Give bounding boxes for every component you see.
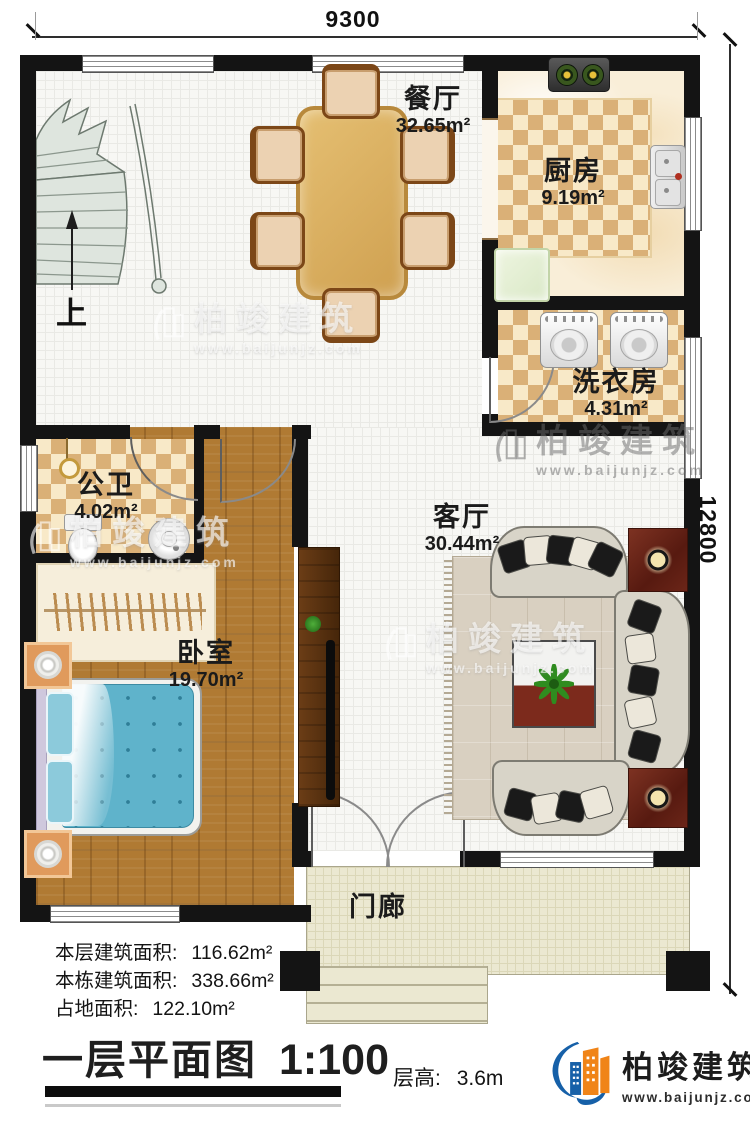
window	[20, 445, 38, 512]
porch-pillar	[666, 951, 710, 991]
wall	[684, 229, 700, 337]
dining-chair	[250, 212, 305, 270]
dining-chair	[322, 288, 380, 343]
dining-chair	[250, 126, 305, 184]
wall	[20, 55, 36, 445]
bathroom-label: 公卫 4.02m²	[74, 470, 137, 524]
wall-bedroom-bottom	[20, 905, 50, 922]
toilet-bowl	[68, 528, 98, 563]
room-name: 餐厅	[396, 84, 471, 115]
stairs-direction-line	[71, 228, 73, 290]
dimension-line-top	[32, 36, 698, 38]
room-name: 公卫	[74, 470, 137, 501]
dimension-width-label: 9300	[325, 6, 380, 33]
kitchen-sink	[650, 145, 686, 209]
bed-pillow	[46, 692, 74, 756]
dining-chair	[400, 212, 455, 270]
nightstand	[24, 830, 72, 878]
floor-plan-page: { "dimensions": { "width_label": "9300",…	[0, 0, 750, 1122]
nightstand-lamp	[34, 840, 62, 868]
stat-label: 本栋建筑面积:	[55, 970, 177, 992]
window	[50, 905, 180, 923]
sofa-pillow	[627, 664, 661, 698]
kitchen-opening	[482, 118, 498, 240]
living-label: 客厅 30.44m²	[425, 502, 500, 556]
window	[82, 55, 214, 73]
dining-label: 餐厅 32.65m²	[396, 84, 471, 138]
sofa-bottom	[492, 760, 630, 836]
brand-logo-icon	[550, 1038, 614, 1108]
nightstand	[24, 642, 72, 689]
title-bar	[45, 1086, 341, 1097]
sink-drain	[664, 188, 669, 193]
stairs-up-label: 上	[56, 288, 87, 333]
laundry-label: 洗衣房 4.31m²	[573, 367, 660, 421]
sofa-right	[614, 590, 690, 774]
stove-burner	[582, 64, 604, 86]
wall-bathroom	[20, 425, 130, 439]
room-area: 30.44m²	[425, 533, 500, 556]
floor-height-label: 层高:	[393, 1067, 441, 1090]
washing-machine	[540, 312, 598, 368]
extension-line	[35, 12, 36, 40]
washer-drum	[550, 329, 588, 361]
room-name: 客厅	[425, 502, 500, 533]
bathroom-sink	[148, 518, 190, 560]
wall-kitchen	[482, 71, 498, 118]
stat-label: 本层建筑面积:	[55, 942, 177, 964]
sofa-pillow	[624, 632, 657, 665]
wall-living-porch	[460, 851, 500, 867]
coffee-table	[512, 640, 596, 728]
sofa-pillow	[626, 598, 663, 635]
room-area: 9.19m²	[541, 187, 604, 210]
sink-faucet	[675, 173, 682, 180]
end-table	[628, 528, 688, 592]
sink-faucet	[173, 545, 179, 551]
room-name: 门廊	[349, 892, 407, 923]
tv	[326, 640, 335, 800]
wall	[212, 55, 312, 71]
table-lamp	[643, 545, 673, 575]
stove-burner	[556, 64, 578, 86]
nightstand-lamp	[34, 651, 62, 679]
bed-pillow	[46, 760, 74, 824]
stove	[548, 57, 610, 92]
cabinet-plant	[305, 616, 321, 632]
stat-value: 116.62m²	[191, 942, 272, 964]
room-area: 32.65m²	[396, 115, 471, 138]
brand-name: 柏竣建筑	[622, 1042, 750, 1087]
bedroom-label: 卧室 19.70m²	[169, 638, 244, 692]
brand-url: www.baijunjz.com	[622, 1090, 750, 1105]
dimension-line-right	[729, 44, 731, 994]
window	[684, 117, 702, 231]
floor-height-value: 3.6m	[457, 1067, 504, 1090]
rug-fringe	[444, 560, 452, 814]
plant	[534, 664, 574, 704]
washer-drum	[620, 329, 658, 361]
staircase	[28, 92, 188, 317]
stat-label: 占地面积:	[55, 998, 138, 1020]
brand-logo: 柏竣建筑 www.baijunjz.com	[550, 1038, 750, 1108]
table-lamp	[643, 783, 673, 813]
room-area: 19.70m²	[169, 669, 244, 692]
porch-pillar	[280, 951, 320, 991]
room-name: 厨房	[541, 156, 604, 187]
stat-building-area: 本栋建筑面积:338.66m²	[55, 964, 274, 993]
sink-drain	[664, 159, 669, 164]
title-scale: 1:100	[279, 1036, 389, 1085]
window	[500, 851, 654, 868]
washer-controls	[545, 316, 593, 322]
stairs-direction-arrow	[66, 210, 78, 229]
fridge	[494, 248, 550, 302]
title-underline	[45, 1104, 341, 1107]
stat-land-area: 占地面积:122.10m²	[55, 992, 235, 1021]
stat-floor-area: 本层建筑面积:116.62m²	[55, 936, 272, 965]
sofa-top	[490, 526, 628, 598]
dining-chair	[322, 64, 380, 119]
dining-table	[296, 106, 408, 300]
wall	[684, 55, 700, 117]
kitchen-label: 厨房 9.19m²	[541, 156, 604, 210]
closet-hangers	[48, 593, 202, 631]
stat-value: 122.10m²	[152, 998, 234, 1020]
shower-cord	[66, 438, 68, 460]
wall-bedroom-bottom	[178, 905, 311, 922]
wall-laundry-living	[482, 422, 700, 436]
title-text: 一层平面图	[42, 1026, 257, 1086]
floor-height: 层高: 3.6m	[393, 1062, 503, 1092]
sofa-pillow	[627, 729, 663, 765]
washing-machine	[610, 312, 668, 368]
room-area: 4.02m²	[74, 501, 137, 524]
room-name: 卧室	[169, 638, 244, 669]
washer-controls	[615, 316, 663, 322]
sofa-pillow	[623, 695, 657, 729]
porch-label: 门廊	[349, 892, 407, 923]
page-title: 一层平面图 1:100	[42, 1026, 389, 1086]
porch-steps	[306, 966, 488, 1024]
end-table	[628, 768, 688, 828]
wall-living-porch	[292, 851, 312, 867]
wall-living-porch	[652, 851, 700, 867]
room-area: 4.31m²	[573, 398, 660, 421]
extension-line	[697, 12, 698, 40]
window	[684, 337, 702, 479]
room-name: 洗衣房	[573, 367, 660, 398]
stat-value: 338.66m²	[191, 970, 273, 992]
